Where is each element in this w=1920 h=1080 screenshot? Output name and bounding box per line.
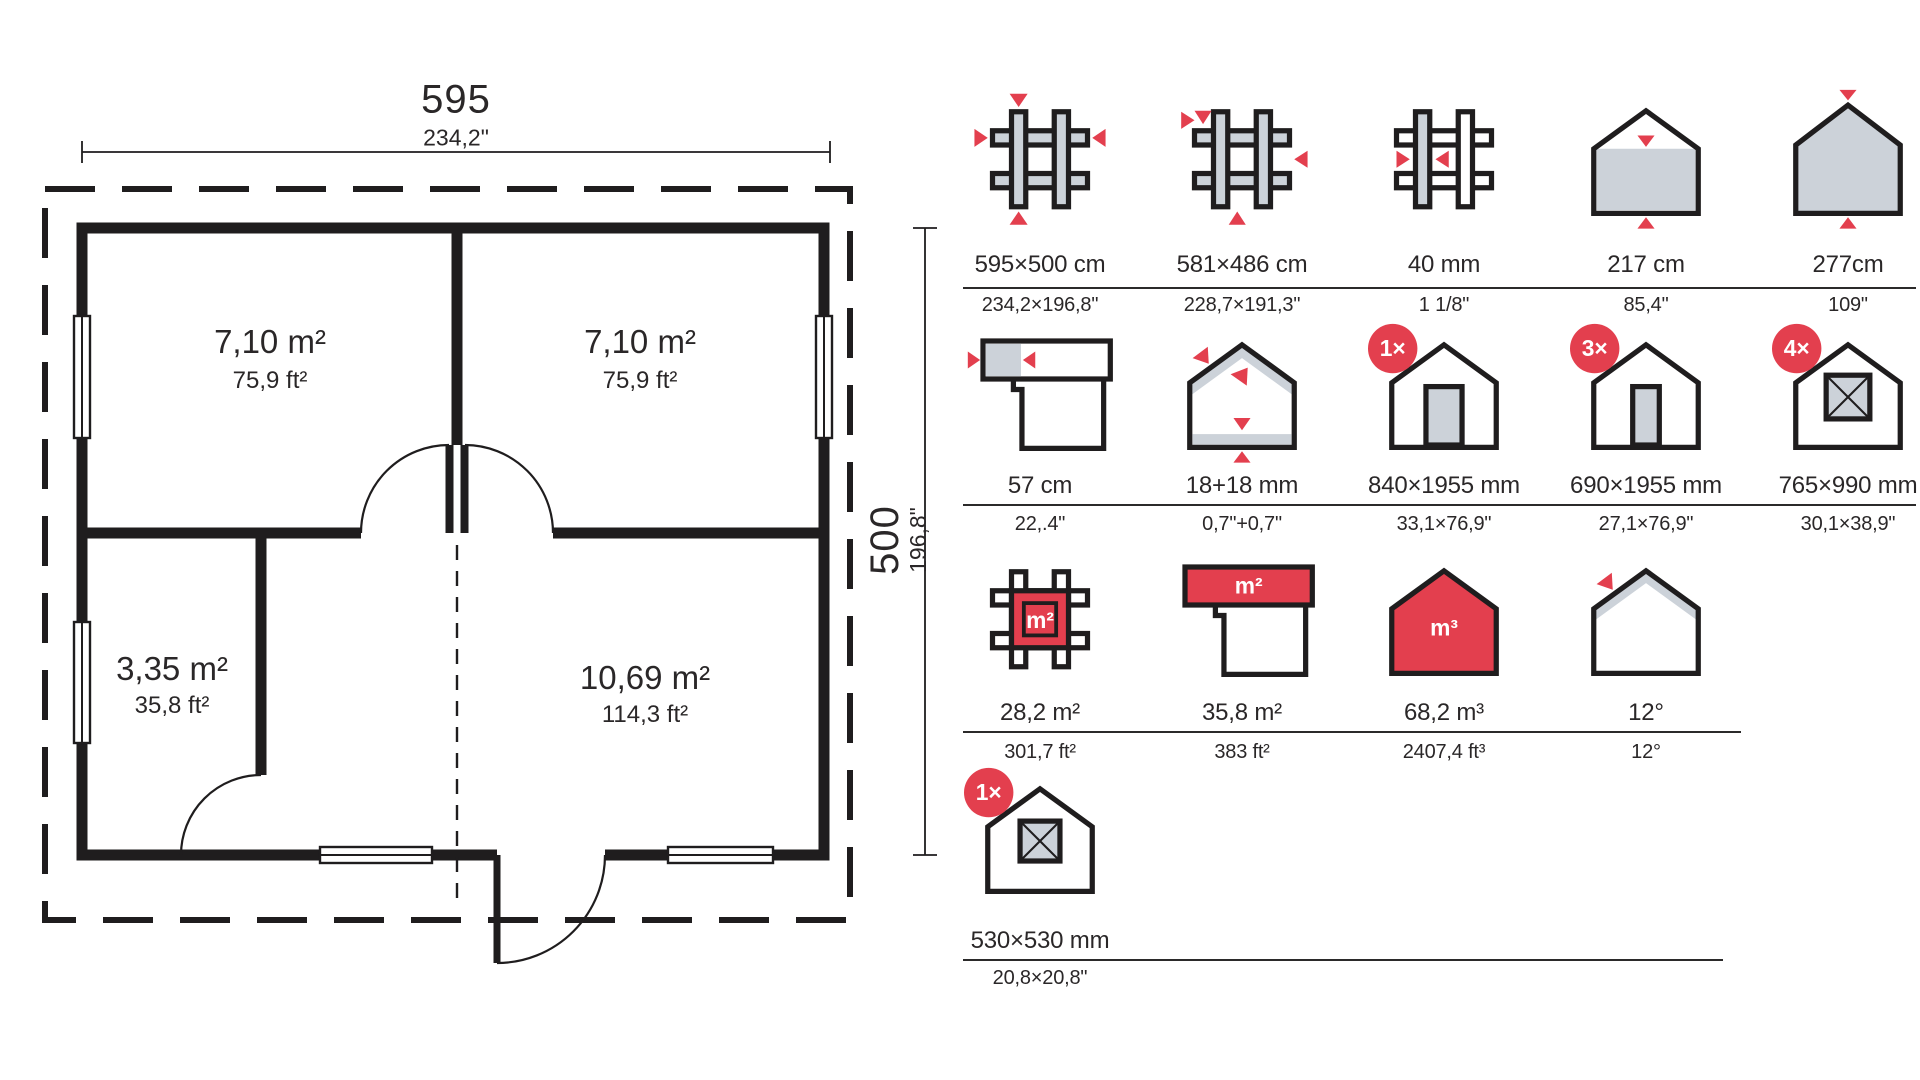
log-frame-inner-dims-icon <box>1166 88 1318 231</box>
metric-label: 18+18 mm <box>1136 472 1348 500</box>
imperial-label: 2407,4 ft³ <box>1338 741 1550 764</box>
count-badge-label: 3× <box>1582 335 1608 361</box>
legend-divider-row4 <box>963 959 1723 961</box>
metric-label: 57 cm <box>934 472 1146 500</box>
count-badge-label: 4× <box>1784 335 1810 361</box>
log-frame-outer-dims-icon <box>964 88 1116 231</box>
volume-unit-label: m³ <box>1430 614 1458 640</box>
legend-divider-row3 <box>963 731 1741 733</box>
metric-label: 28,2 m² <box>934 699 1146 727</box>
walls <box>77 223 828 861</box>
window-icon: 4× <box>1772 322 1920 465</box>
plan-height-label: 500 196,8" <box>865 505 931 575</box>
imperial-label: 20,8×20,8" <box>934 967 1146 990</box>
ridge-height-icon <box>1772 88 1920 231</box>
plan-width-inches: 234,2" <box>423 125 489 152</box>
roof-area-icon: m² <box>1166 548 1318 691</box>
imperial-label: 33,1×76,9" <box>1338 513 1550 536</box>
door-swing-arcs <box>181 445 605 963</box>
legend-divider-row1 <box>963 287 1916 289</box>
room-bottom-right-area-ft: 114,3 ft² <box>602 701 688 729</box>
room-top-left-area: 7,10 m² <box>214 323 326 361</box>
footprint-area-icon: m² <box>964 548 1116 691</box>
count-badge-label: 1× <box>1380 335 1406 361</box>
roof-overhang-outline <box>45 189 850 920</box>
roof-floor-boards-icon <box>1166 322 1318 465</box>
small-window-icon: 1× <box>964 766 1116 909</box>
plan-height-value: 500 <box>865 505 906 575</box>
spec-sheet: { "floor_plan": { "width_dim": { "value"… <box>0 0 1920 1080</box>
metric-label: 35,8 m² <box>1136 699 1348 727</box>
imperial-label: 85,4" <box>1540 294 1752 317</box>
room-top-left-area-ft: 75,9 ft² <box>233 367 308 395</box>
room-bottom-right-area: 10,69 m² <box>580 659 710 697</box>
metric-label: 765×990 mm <box>1742 472 1920 500</box>
imperial-label: 109" <box>1742 294 1920 317</box>
plan-width-value: 595 <box>421 78 491 123</box>
door-icon: 1× <box>1368 322 1520 465</box>
imperial-label: 0,7"+0,7" <box>1136 513 1348 536</box>
volume-icon: m³ <box>1368 548 1520 691</box>
imperial-label: 27,1×76,9" <box>1540 513 1752 536</box>
metric-label: 217 cm <box>1540 251 1752 279</box>
metric-label: 40 mm <box>1338 251 1550 279</box>
imperial-label: 30,1×38,9" <box>1742 513 1920 536</box>
room-bottom-left-area: 3,35 m² <box>116 650 228 688</box>
legend-divider-row2 <box>963 504 1916 506</box>
roof-overhang-icon <box>964 322 1116 465</box>
metric-label: 581×486 cm <box>1136 251 1348 279</box>
imperial-label: 234,2×196,8" <box>934 294 1146 317</box>
imperial-label: 1 1/8" <box>1338 294 1550 317</box>
metric-label: 68,2 m³ <box>1338 699 1550 727</box>
metric-label: 530×530 mm <box>934 927 1146 955</box>
door-narrow-icon: 3× <box>1570 322 1722 465</box>
imperial-label: 301,7 ft² <box>934 741 1146 764</box>
room-bottom-left-area-ft: 35,8 ft² <box>135 692 210 720</box>
wall-thickness-icon <box>1368 88 1520 231</box>
imperial-label: 12° <box>1540 741 1752 764</box>
imperial-label: 22,.4" <box>934 513 1146 536</box>
imperial-label: 383 ft² <box>1136 741 1348 764</box>
plan-height-inches: 196,8" <box>906 505 931 575</box>
metric-label: 12° <box>1540 699 1752 727</box>
imperial-label: 228,7×191,3" <box>1136 294 1348 317</box>
metric-label: 840×1955 mm <box>1338 472 1550 500</box>
roof-angle-icon <box>1570 548 1722 691</box>
count-badge-label: 1× <box>976 779 1002 805</box>
metric-label: 595×500 cm <box>934 251 1146 279</box>
room-top-right-area: 7,10 m² <box>584 323 696 361</box>
area-unit-label: m² <box>1235 573 1263 599</box>
metric-label: 277cm <box>1742 251 1920 279</box>
room-top-right-area-ft: 75,9 ft² <box>603 367 678 395</box>
wall-height-icon <box>1570 88 1722 231</box>
area-unit-label: m² <box>1026 607 1054 633</box>
metric-label: 690×1955 mm <box>1540 472 1752 500</box>
